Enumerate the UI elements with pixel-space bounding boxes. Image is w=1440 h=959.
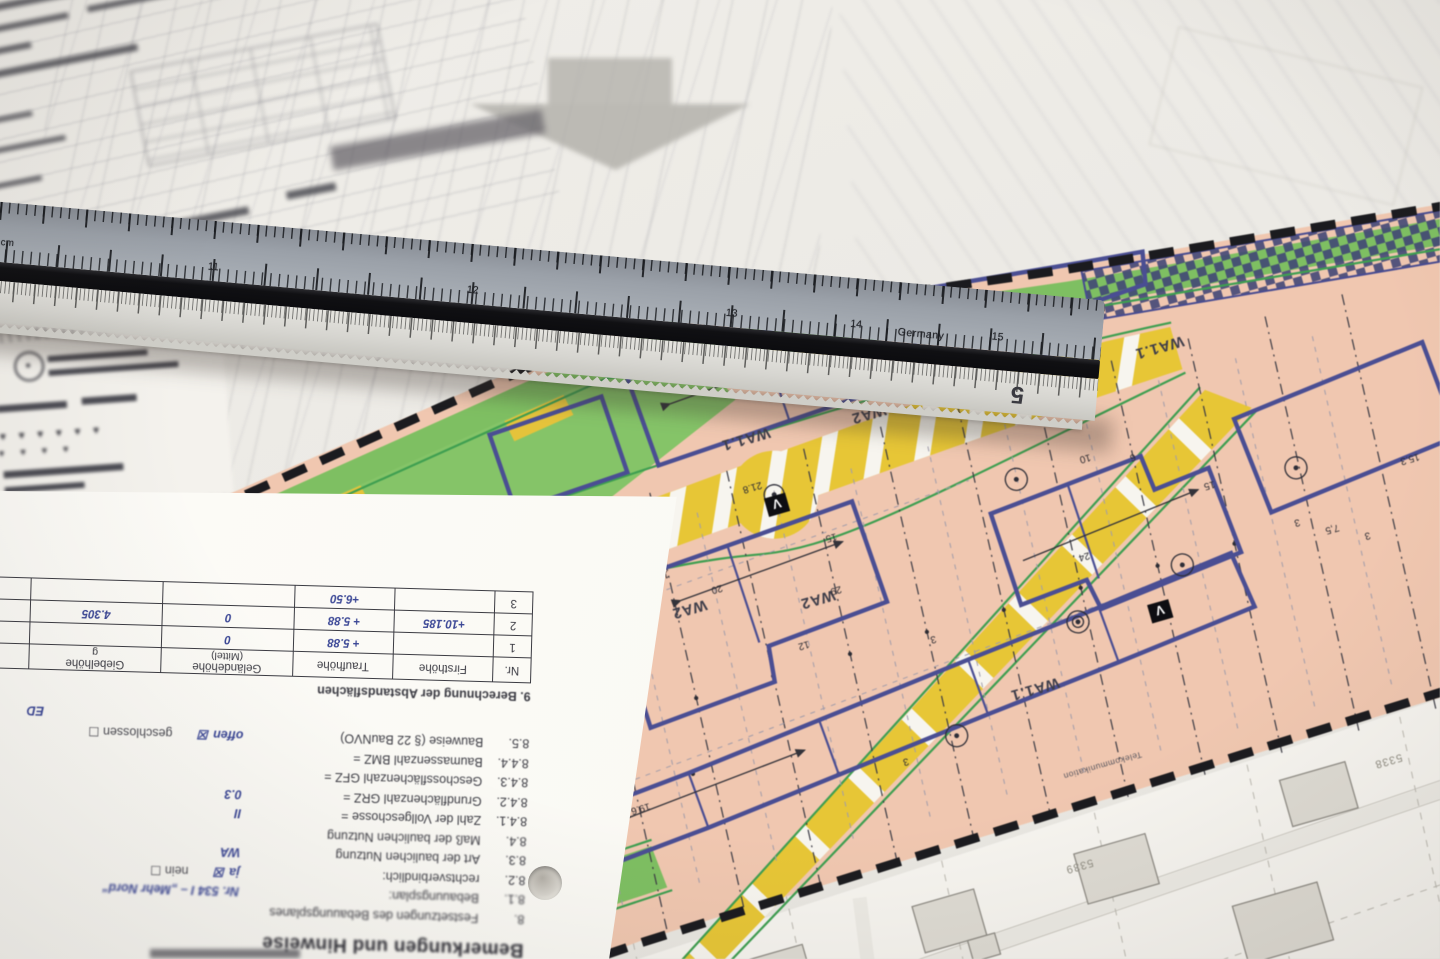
table-header: Traufhöhe — [293, 652, 394, 680]
section-number — [484, 719, 530, 720]
section-number: 8.4. — [480, 830, 527, 851]
section-value: Nr. 534 I – „Mehr Nord“ — [102, 878, 239, 901]
section-number: 8.3. — [480, 849, 527, 870]
table-cell: + 5.88 — [293, 630, 394, 655]
punch-hole — [528, 866, 562, 900]
table-cell — [31, 578, 164, 604]
section-value: II — [234, 803, 241, 823]
section-value: offen ☒ — [198, 724, 244, 745]
section-label — [244, 712, 484, 719]
table-cell: 2 — [494, 613, 533, 636]
table-cell — [29, 622, 162, 648]
photo-canvas: ▲ ▲ ▲ ▲ ▲ ▲ ▲ ▲ ▲ ▲ — [0, 0, 1440, 959]
ruler-origin-label: 160 cm — [0, 235, 15, 249]
table-cell: +10.185 — [394, 611, 495, 636]
table-header: 1/3 x g — [0, 641, 29, 669]
table-cell: + 5.88 — [294, 608, 395, 633]
ruler-brand: Germany — [897, 326, 945, 342]
table-header-sub: (Mittel) — [167, 650, 286, 663]
form-sections: 8.Festsetzungen des Bebauungsplanes8.1.B… — [0, 695, 530, 928]
abstandsflaechen-table: Nr.FirsthöheTraufhöheGeländehöhe(Mittel)… — [0, 575, 534, 684]
section-value: 0.3 — [224, 783, 242, 803]
section-extra: nein ☐ — [150, 859, 189, 880]
table-cell: 1 — [493, 635, 532, 658]
ruler-scale-number: 12 — [466, 284, 479, 297]
section-number: 8.4.3. — [482, 771, 529, 792]
table-header: Firsthöhe — [393, 655, 494, 683]
table-header: Giebelhöheg — [29, 644, 162, 673]
table-cell — [0, 575, 31, 600]
section-number: 8.5. — [483, 732, 530, 753]
ruler-scale-number: 13 — [725, 307, 738, 320]
table-cell — [393, 633, 494, 658]
table-cell: 0 — [161, 626, 294, 652]
table-cell — [163, 582, 296, 608]
table-cell: 0 — [162, 604, 295, 630]
ruler-end-number: 5 — [1010, 379, 1026, 408]
cut-off-text-sliver — [150, 949, 300, 958]
ruler-scale-number: 11 — [207, 261, 219, 274]
table-header: Geländehöhe(Mittel) — [161, 648, 294, 677]
section-value: ja ☒ — [214, 861, 240, 881]
table-cell: +6.50 — [294, 586, 395, 611]
section-number: 8.2. — [479, 869, 526, 890]
ruler-scale-number: 14 — [850, 318, 863, 331]
section-number: 8.4.1. — [481, 810, 528, 831]
table-header-sub: g — [36, 646, 155, 659]
section-number: 8.4.2. — [481, 791, 528, 812]
table-cell — [0, 619, 30, 644]
table-cell: 3 — [494, 591, 533, 614]
table-header: Nr. — [492, 657, 531, 683]
table-cell: 4.305 — [30, 600, 163, 626]
ruler-scale-number: 15 — [991, 330, 1004, 343]
section-extra: geschlossen ☐ — [88, 721, 173, 743]
section-number: 8.4.4. — [483, 752, 530, 773]
section-number: 8. — [478, 908, 525, 929]
form-sheet-content: Bemerkungen und Hinweise 8.Festsetzungen… — [0, 451, 687, 959]
section-value: ED — [26, 700, 44, 720]
table-cell: 1.435 — [0, 597, 31, 622]
section-number: 8.1. — [479, 888, 526, 909]
section-value: WA — [220, 842, 241, 862]
table-cell — [394, 589, 495, 614]
